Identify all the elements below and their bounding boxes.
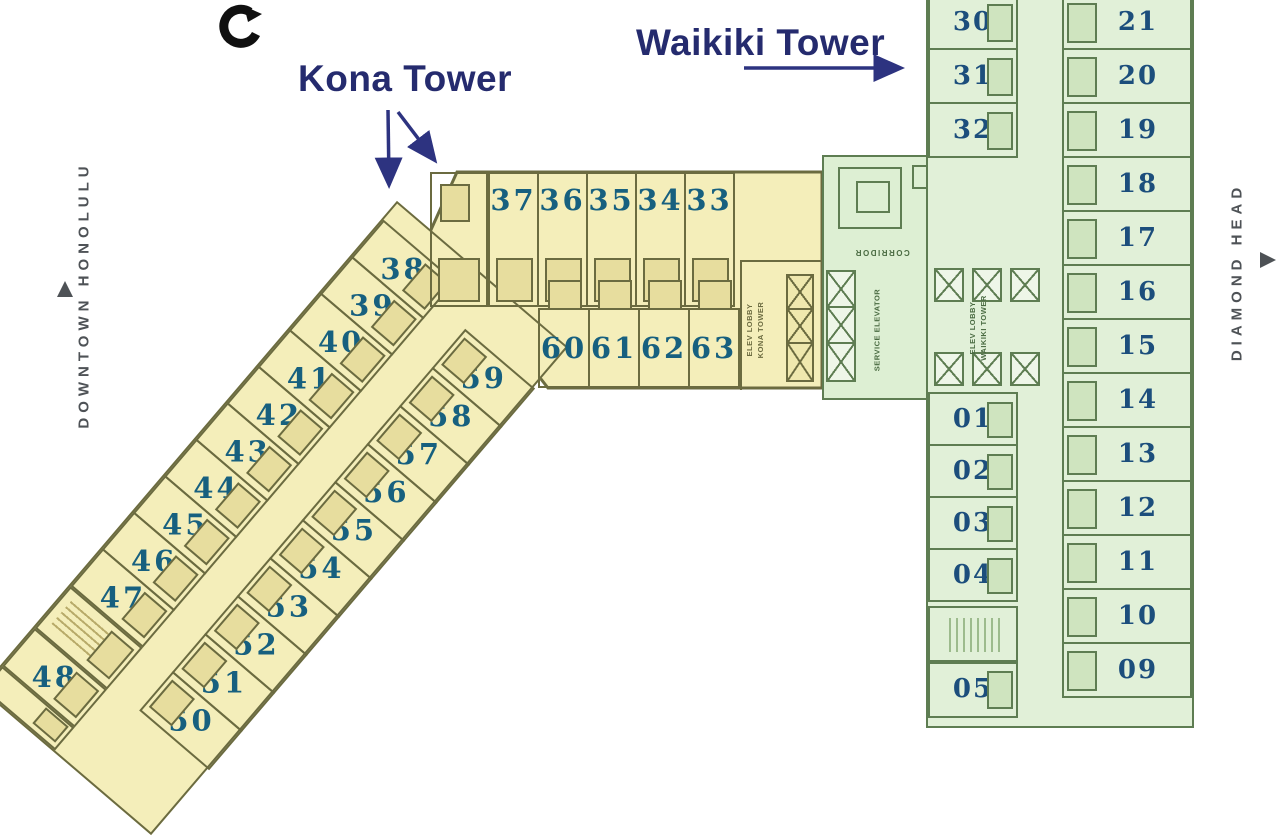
room-cell: 31 — [928, 48, 1018, 104]
diamond-head-direction-arrow-icon — [1260, 252, 1276, 268]
room-cell: 14 — [1062, 372, 1192, 428]
room-cell: 16 — [1062, 264, 1192, 320]
room-cell: 21 — [1062, 0, 1192, 50]
room-number: 46 — [131, 547, 177, 576]
room-number: 61 — [591, 334, 637, 363]
room-number: 11 — [1118, 549, 1158, 575]
room-cell: 30 — [928, 0, 1018, 50]
room-cell: 60 — [538, 308, 590, 388]
kona-middle-row: 60616263 — [538, 308, 740, 388]
room-number: 21 — [1118, 9, 1158, 35]
room-cell: 18 — [1062, 156, 1192, 212]
room-number: 01 — [953, 406, 993, 432]
room-number: 30 — [953, 9, 993, 35]
room-number: 04 — [953, 562, 993, 588]
room-number: 35 — [588, 186, 634, 215]
waikiki-left-column-bottom: 05 — [928, 660, 1018, 718]
downtown-direction-arrow-icon — [57, 281, 73, 297]
room-number: 32 — [953, 117, 993, 143]
room-cell: 10 — [1062, 588, 1192, 644]
room-cell: 01 — [928, 392, 1018, 446]
room-number: 03 — [953, 510, 993, 536]
room-cell: 37 — [488, 172, 539, 307]
room-number: 02 — [953, 458, 993, 484]
room-number: 12 — [1118, 495, 1158, 521]
kona-elev-lobby-label: ELEV LOBBY KONA TOWER — [744, 302, 767, 359]
room-number: 57 — [395, 440, 441, 469]
room-number: 43 — [224, 437, 270, 466]
room-cell: 63 — [688, 308, 740, 388]
kona-top-row: 3736353433 — [430, 172, 735, 307]
room-number: 34 — [637, 186, 683, 215]
room-number: 55 — [330, 516, 376, 545]
waikiki-elev-lobby-label: ELEV LOBBY WAIKIKI TOWER — [967, 295, 990, 361]
room-number: 15 — [1118, 333, 1158, 359]
room-number: 09 — [1118, 657, 1158, 683]
room-number: 54 — [298, 554, 344, 583]
elevator-shaft — [786, 274, 814, 310]
room-cell: 13 — [1062, 426, 1192, 482]
room-cell: 02 — [928, 444, 1018, 498]
stairwell — [928, 606, 1018, 664]
elevator-shaft — [1010, 352, 1040, 386]
room-cell: 12 — [1062, 480, 1192, 536]
elevator-shaft — [786, 308, 814, 344]
room-cell: 20 — [1062, 48, 1192, 104]
room-number: 05 — [953, 676, 993, 702]
room-number: 13 — [1118, 441, 1158, 467]
room-cell: 61 — [588, 308, 640, 388]
room-number: 62 — [641, 334, 687, 363]
room-cell: 09 — [1062, 642, 1192, 698]
room-number: 33 — [686, 186, 732, 215]
room-number: 18 — [1118, 171, 1158, 197]
waikiki-left-column-top: 303132 — [928, 0, 1018, 158]
room-number: 47 — [100, 583, 146, 612]
service-elevator-shaft — [826, 306, 856, 344]
service-elevator-label: SERVICE ELEVATOR — [871, 289, 882, 371]
room-number: 17 — [1118, 225, 1158, 251]
room-number: 50 — [168, 706, 214, 735]
room-number: 58 — [428, 402, 474, 431]
room-number: 20 — [1118, 63, 1158, 89]
room-cell: 62 — [638, 308, 690, 388]
elevator-shaft — [786, 342, 814, 382]
room-number: 40 — [318, 328, 364, 357]
downtown-honolulu-label: DOWNTOWN HONOLULU — [76, 161, 93, 428]
room-cell: 17 — [1062, 210, 1192, 266]
diamond-head-label: DIAMOND HEAD — [1229, 183, 1246, 361]
room-number: 63 — [691, 334, 737, 363]
room-number: 42 — [256, 401, 302, 430]
room-cell: 11 — [1062, 534, 1192, 590]
room-number: 19 — [1118, 117, 1158, 143]
room-number: 36 — [539, 186, 585, 215]
room-number: 45 — [162, 510, 208, 539]
elevator-shaft — [1010, 268, 1040, 302]
room-number: 51 — [200, 668, 246, 697]
room-cell: 32 — [928, 102, 1018, 158]
room-number: 44 — [193, 474, 239, 503]
room-cell — [430, 172, 488, 307]
corridor-label: CORRIDOR — [854, 246, 910, 258]
room-number: 31 — [953, 63, 993, 89]
waikiki-tower: 303132 01020304 05 212019181716151413121… — [926, 0, 1194, 728]
room-number: 16 — [1118, 279, 1158, 305]
room-number: 56 — [363, 478, 409, 507]
room-number: 60 — [541, 334, 587, 363]
room-cell: 19 — [1062, 102, 1192, 158]
room-number: 41 — [287, 364, 333, 393]
kona-tower-title: Kona Tower — [298, 58, 512, 100]
room-number: 52 — [233, 630, 279, 659]
floor-plan-page: { "titles": { "kona": "Kona Tower", "wai… — [0, 0, 1280, 720]
room-number: 38 — [380, 255, 426, 284]
waikiki-right-column: 21201918171615141312111009 — [1062, 0, 1192, 698]
elevator-shaft — [934, 352, 964, 386]
room-number: 14 — [1118, 387, 1158, 413]
service-elevator-shaft — [826, 270, 856, 308]
waikiki-left-column-mid: 01020304 — [928, 392, 1018, 602]
core-room — [856, 181, 890, 213]
room-number: 39 — [349, 291, 395, 320]
waikiki-tower-title: Waikiki Tower — [636, 22, 885, 64]
room-number: 10 — [1118, 603, 1158, 629]
room-cell: 04 — [928, 548, 1018, 602]
room-number: 48 — [31, 663, 77, 692]
room-cell: 05 — [928, 660, 1018, 718]
room-number: 37 — [490, 186, 536, 215]
service-elevator-shaft — [826, 342, 856, 382]
elevator-shaft — [934, 268, 964, 302]
room-cell: 03 — [928, 496, 1018, 550]
room-cell: 15 — [1062, 318, 1192, 374]
room-number: 53 — [265, 592, 311, 621]
